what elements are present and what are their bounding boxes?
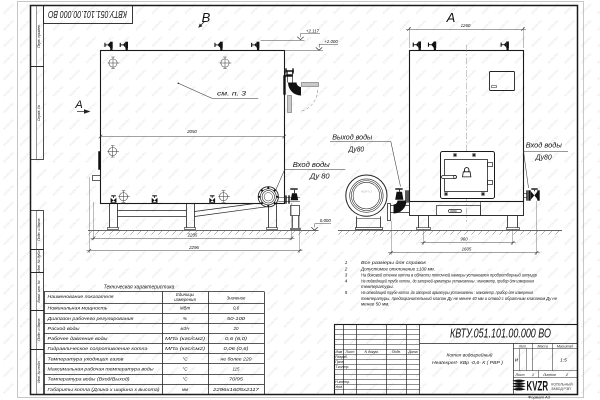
- svg-text:1: 1: [345, 260, 348, 265]
- svg-text:50-100: 50-100: [227, 316, 246, 321]
- svg-text:МВт: МВт: [180, 306, 191, 311]
- svg-text:Лист: Лист: [514, 373, 524, 377]
- svg-text:КВЗР-6,3: КВЗР-6,3: [361, 189, 372, 193]
- svg-text:Температура воды (Вход/Выход): Температура воды (Вход/Выход): [48, 377, 131, 382]
- svg-text:°С: °С: [183, 356, 189, 361]
- svg-text:1260: 1260: [461, 23, 471, 28]
- svg-text:Габариты котла (Длина х ширина: Габариты котла (Длина х ширина х высота): [48, 387, 161, 392]
- svg-text:4: 4: [345, 278, 348, 283]
- svg-text:На отводящей трубе котла ,до з: На отводящей трубе котла ,до запорной ар…: [361, 289, 533, 295]
- svg-text:Изм: Изм: [336, 350, 343, 354]
- svg-text:70/95: 70/95: [229, 377, 244, 382]
- svg-text:Масштаб: Масштаб: [557, 345, 574, 349]
- svg-text:Ду80: Ду80: [348, 145, 364, 154]
- svg-text:МПа (кгс/см2): МПа (кгс/см2): [165, 346, 206, 351]
- svg-text:мм: мм: [182, 387, 188, 392]
- svg-text:Наименование показателя: Наименование показателя: [48, 294, 115, 299]
- svg-text:Номинальная мощность: Номинальная мощность: [48, 306, 109, 311]
- svg-text:+2.000: +2.000: [324, 39, 338, 44]
- svg-text:Утв.: Утв.: [335, 385, 343, 389]
- svg-text:Перв. примен.: Перв. примен.: [37, 24, 41, 48]
- svg-text:5: 5: [345, 290, 348, 295]
- svg-text:Т.контр.: Т.контр.: [335, 365, 349, 369]
- svg-text:измерения: измерения: [174, 297, 196, 302]
- svg-text:Формат А3: Формат А3: [528, 394, 551, 399]
- svg-text:Значение: Значение: [227, 295, 246, 300]
- svg-text:20: 20: [233, 326, 239, 331]
- svg-text:Подп. и дата: Подп. и дата: [37, 219, 41, 242]
- svg-text:Инв. № подл.: Инв. № подл.: [37, 360, 41, 382]
- svg-text:Вход воды: Вход воды: [293, 160, 331, 169]
- svg-text:Все размеры для справок: Все размеры для справок: [361, 260, 427, 265]
- svg-text:1:5: 1:5: [560, 358, 567, 364]
- svg-text:Справ. №: Справ. №: [37, 105, 41, 121]
- svg-text:0,6 (6,0): 0,6 (6,0): [225, 336, 248, 341]
- svg-text:Подп. и дата: Подп. и дата: [37, 319, 41, 342]
- svg-text:Heatexpert- КВр -0,6- К ( РВР: Heatexpert- КВр -0,6- К ( РВР ): [432, 360, 504, 365]
- svg-text:На боковой стенке котла в обла: На боковой стенке котла в области топочн…: [361, 271, 537, 277]
- svg-text:°С: °С: [183, 367, 189, 372]
- svg-text:Котел водогрейный: Котел водогрейный: [447, 352, 493, 358]
- svg-text:2: 2: [344, 266, 348, 271]
- svg-text:Разраб.: Разраб.: [335, 355, 348, 359]
- svg-text:И: И: [515, 358, 519, 364]
- svg-text:2205: 2205: [187, 232, 198, 237]
- svg-text:КВТУ.051.101.00.000 ВО: КВТУ.051.101.00.000 ВО: [48, 8, 127, 19]
- svg-text:Температура уходящих газов: Температура уходящих газов: [48, 356, 125, 361]
- svg-text:Рабочее давление воды: Рабочее давление воды: [48, 336, 109, 341]
- svg-text:не более 220: не более 220: [221, 356, 253, 361]
- svg-text:960: 960: [460, 237, 468, 242]
- svg-text:Ду 80: Ду 80: [309, 171, 330, 180]
- svg-text:температуры, предохранительный: температуры, предохранительный клапан Ду…: [361, 295, 557, 301]
- svg-text:Лист: Лист: [344, 350, 354, 354]
- svg-text:3: 3: [345, 272, 348, 277]
- svg-text:Инв. № дубл.: Инв. № дубл.: [37, 250, 41, 272]
- svg-text:2296: 2296: [188, 245, 199, 250]
- svg-text:Выход воды: Выход воды: [332, 132, 373, 141]
- svg-text:Диапазон рабочего регулировани: Диапазон рабочего регулирования: [46, 316, 134, 321]
- svg-text:КОТЕЛЬНЫЙ: КОТЕЛЬНЫЙ: [551, 382, 573, 386]
- svg-text:Пров.: Пров.: [335, 360, 344, 364]
- svg-text:Гидравлическое сопротивление к: Гидравлическое сопротивление котла: [48, 346, 149, 351]
- svg-text:менее 50 мм.: менее 50 мм.: [361, 302, 390, 307]
- svg-text:+2.117: +2.117: [306, 28, 320, 33]
- svg-text:м3/ч: м3/ч: [181, 326, 191, 331]
- svg-text:А: А: [446, 10, 456, 25]
- svg-text:2: 2: [565, 373, 568, 377]
- svg-text:0.000: 0.000: [320, 218, 332, 223]
- svg-text:Лит.: Лит.: [518, 345, 527, 349]
- svg-text:°С: °С: [183, 377, 189, 382]
- svg-text:%: %: [183, 316, 187, 321]
- svg-text:На подводящей трубе котла , д: На подводящей трубе котла , до запорной …: [361, 277, 534, 283]
- svg-text:Ду80: Ду80: [535, 153, 552, 162]
- svg-text:Дата: Дата: [407, 350, 417, 354]
- svg-text:1605: 1605: [462, 247, 472, 252]
- svg-text:2296х1605х2117: 2296х1605х2117: [212, 387, 260, 392]
- svg-text:Взам. инв. №: Взам. инв. №: [37, 280, 41, 302]
- svg-text:МПа (кгс/см2): МПа (кгс/см2): [165, 336, 206, 341]
- svg-text:Допустимое отклонение ±100 мм: Допустимое отклонение ±100 мм.: [360, 266, 435, 271]
- svg-text:Листов: Листов: [542, 373, 556, 377]
- svg-text:115: 115: [233, 367, 241, 372]
- svg-text:1: 1: [532, 373, 534, 377]
- svg-text:0,6: 0,6: [233, 306, 240, 311]
- svg-text:KVZR: KVZR: [527, 378, 549, 393]
- svg-text:Н.контр.: Н.контр.: [335, 380, 350, 384]
- svg-text:А: А: [74, 99, 82, 111]
- svg-text:КВТУ.051.101.00.000 ВО: КВТУ.051.101.00.000 ВО: [450, 327, 551, 341]
- svg-text:Максимальная рабочая температу: Максимальная рабочая температура воды: [48, 367, 155, 372]
- svg-text:температуры.: температуры.: [361, 284, 394, 289]
- svg-text:Масса: Масса: [538, 345, 548, 349]
- svg-text:0,06 (0,6): 0,06 (0,6): [224, 346, 250, 351]
- svg-text:Подп.: Подп.: [392, 350, 401, 354]
- svg-text:2050: 2050: [186, 129, 197, 134]
- svg-text:Расход воды: Расход воды: [48, 326, 81, 331]
- svg-text:N докум.: N докум.: [365, 350, 379, 354]
- svg-text:ЗАВОД РЭП: ЗАВОД РЭП: [551, 387, 571, 391]
- svg-text:Техническая характеристика: Техническая характеристика: [104, 285, 175, 291]
- svg-text:Вход воды: Вход воды: [526, 141, 563, 150]
- svg-text:см. п. 3: см. п. 3: [217, 91, 247, 98]
